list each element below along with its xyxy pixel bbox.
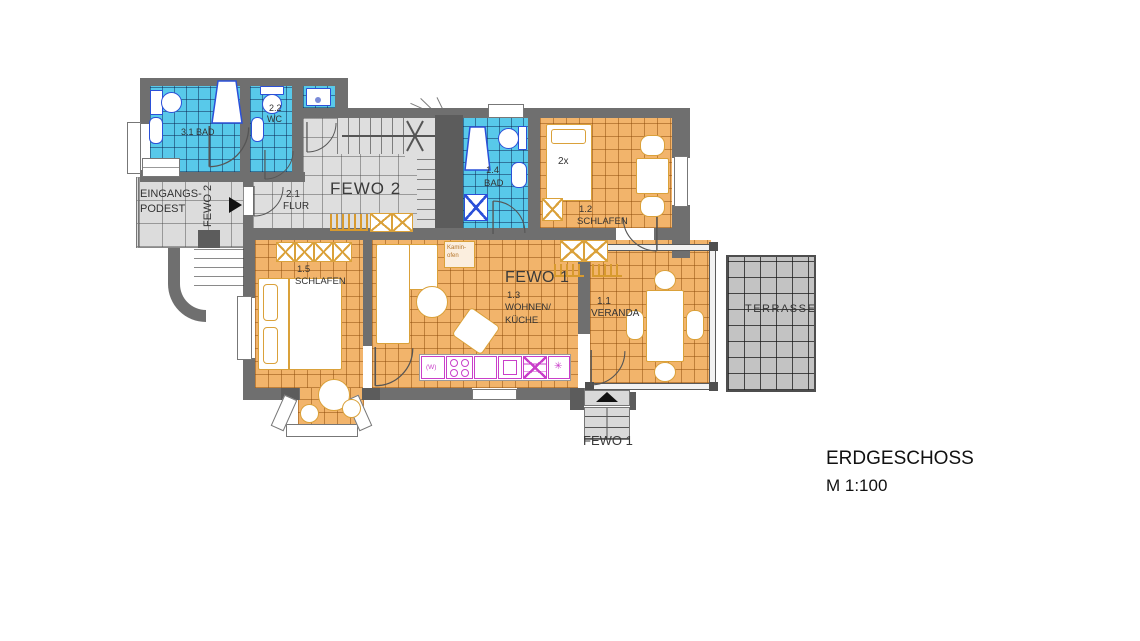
label-eingang-1: EINGANGS- [140,189,202,201]
cabinet-icon [560,240,584,262]
chair-icon [686,310,704,340]
label-wc22: WC [267,115,282,124]
label-schlafen15: SCHLAFEN [295,277,346,287]
sink-icon [149,117,163,144]
sofa-chaise-icon [376,244,410,344]
veranda-post [709,242,718,251]
table-icon [636,158,669,194]
cabinet-icon [584,240,608,262]
floor-plan: Kamin- ofen (W) ✳ 3.1 BAD 2.2 WC 2.1 FLU… [0,0,1140,641]
entry-direction-arrow [596,392,618,402]
pillow-icon [551,129,586,144]
pillow-icon [263,284,278,321]
toilet-tank-icon [518,126,527,150]
wardrobe-icon [314,242,333,262]
chimney-wall [435,115,463,233]
wall-segment [363,240,372,346]
podest-bench [142,158,180,177]
pillow-icon [263,327,278,364]
label-veranda11: VERANDA [591,309,639,320]
wall-segment [243,177,253,187]
kaminofen-label-2: ofen [447,253,459,259]
label-fewo2-entrance: FEWO 2 [203,177,215,227]
coat-rack-icon [330,214,368,231]
door-arc-wc22 [264,150,294,180]
label-wohnen13-line1: WOHNEN/ [505,303,551,313]
chair-icon [640,135,665,156]
wall-segment [570,388,584,410]
veranda-post [709,382,718,391]
door-arc-schlafen15 [374,347,414,387]
fridge-icon: ✳ [548,356,570,379]
bay-wall-stub [362,388,380,400]
cabinet-icon [392,213,413,232]
plan-scale: M 1:100 [826,477,887,495]
bay-window-front [286,424,358,437]
window-schlafen12-right [674,156,688,207]
door-arc-veranda [590,350,626,386]
terrasse-floor [726,255,816,392]
kaminofen-label-1: Kamin- [447,245,466,251]
window-bad31-left [127,122,141,174]
wall-segment [630,392,636,410]
washing-machine-icon: (W) [421,356,445,379]
sink-icon [251,117,264,142]
wardrobe-icon [295,242,314,262]
chair-icon [654,362,676,382]
label-fewo1: FEWO 1 [505,270,569,287]
door-wohnen-south [472,389,517,400]
label-bad14-number: 1.4 [486,166,499,176]
stair-handrail [342,135,438,137]
label-flur21: FLUR [283,202,309,213]
label-schlafen12-number: 1.2 [579,205,592,215]
veranda-table-icon [646,290,684,362]
wardrobe-icon [276,242,295,262]
wall-segment [243,240,255,298]
label-terrasse: TERRASSE [745,304,816,316]
sink-unit-icon [498,356,522,379]
door-arc-podest [253,186,284,217]
label-eingang-2: PODEST [140,204,185,216]
label-bad31: 3.1 BAD [181,128,215,137]
label-bad14: BAD [484,179,504,189]
label-beds-2x: 2x [558,157,569,168]
radiator-icon [592,264,622,277]
fridge-glyph: ✳ [554,362,562,373]
dishwasher-icon [523,356,547,379]
stove-icon [446,356,473,379]
wall-segment [672,108,690,158]
wall-segment [528,112,540,238]
sink-icon [511,162,527,188]
counter-section [474,356,497,379]
kaminofen-box: Kamin- ofen [444,241,475,268]
window-bad14-top [488,104,524,118]
coffee-table-icon [416,286,448,318]
label-flur21-number: 2.1 [286,190,300,201]
chair-icon [640,196,665,217]
label-veranda11-number: 1.1 [597,297,611,308]
door-arc-bad14 [492,200,526,234]
chair-icon [342,399,361,418]
label-wohnen13-number: 1.3 [507,291,520,301]
label-wohnen13-line2: KÜCHE [505,316,538,326]
chair-icon [654,270,676,290]
toilet-bowl-icon [161,92,182,113]
window-schlafen15-left [237,296,252,360]
label-schlafen12: SCHLAFEN [577,217,628,227]
label-fewo2: FEWO 2 [330,180,401,198]
door-arc-stair-hall [306,122,337,153]
label-schlafen15-number: 1.5 [297,265,310,275]
label-wc22-number: 2.2 [269,104,282,113]
wardrobe-icon [333,242,352,262]
podest-stair-newel [198,230,220,248]
toilet-bowl-icon [498,128,519,149]
wall-segment [140,78,150,124]
cabinet-icon [370,213,392,232]
sink-basin [503,360,517,375]
fewo2-entrance-arrow [229,197,242,213]
washer-space-icon [464,194,488,221]
plan-title: ERDGESCHOSS [826,449,974,469]
label-fewo1-entrance: FEWO 1 [583,434,633,448]
washing-machine-label: (W) [426,365,436,372]
chair-icon [300,404,319,423]
veranda-frame-right [709,244,716,390]
bed-blanket-line [288,279,290,369]
utility-appliance-dot [315,97,321,103]
wall-segment [528,228,616,240]
podest-exterior-stair-curve [168,248,206,322]
shower-icon [211,80,243,124]
cabinet-icon [542,198,563,221]
